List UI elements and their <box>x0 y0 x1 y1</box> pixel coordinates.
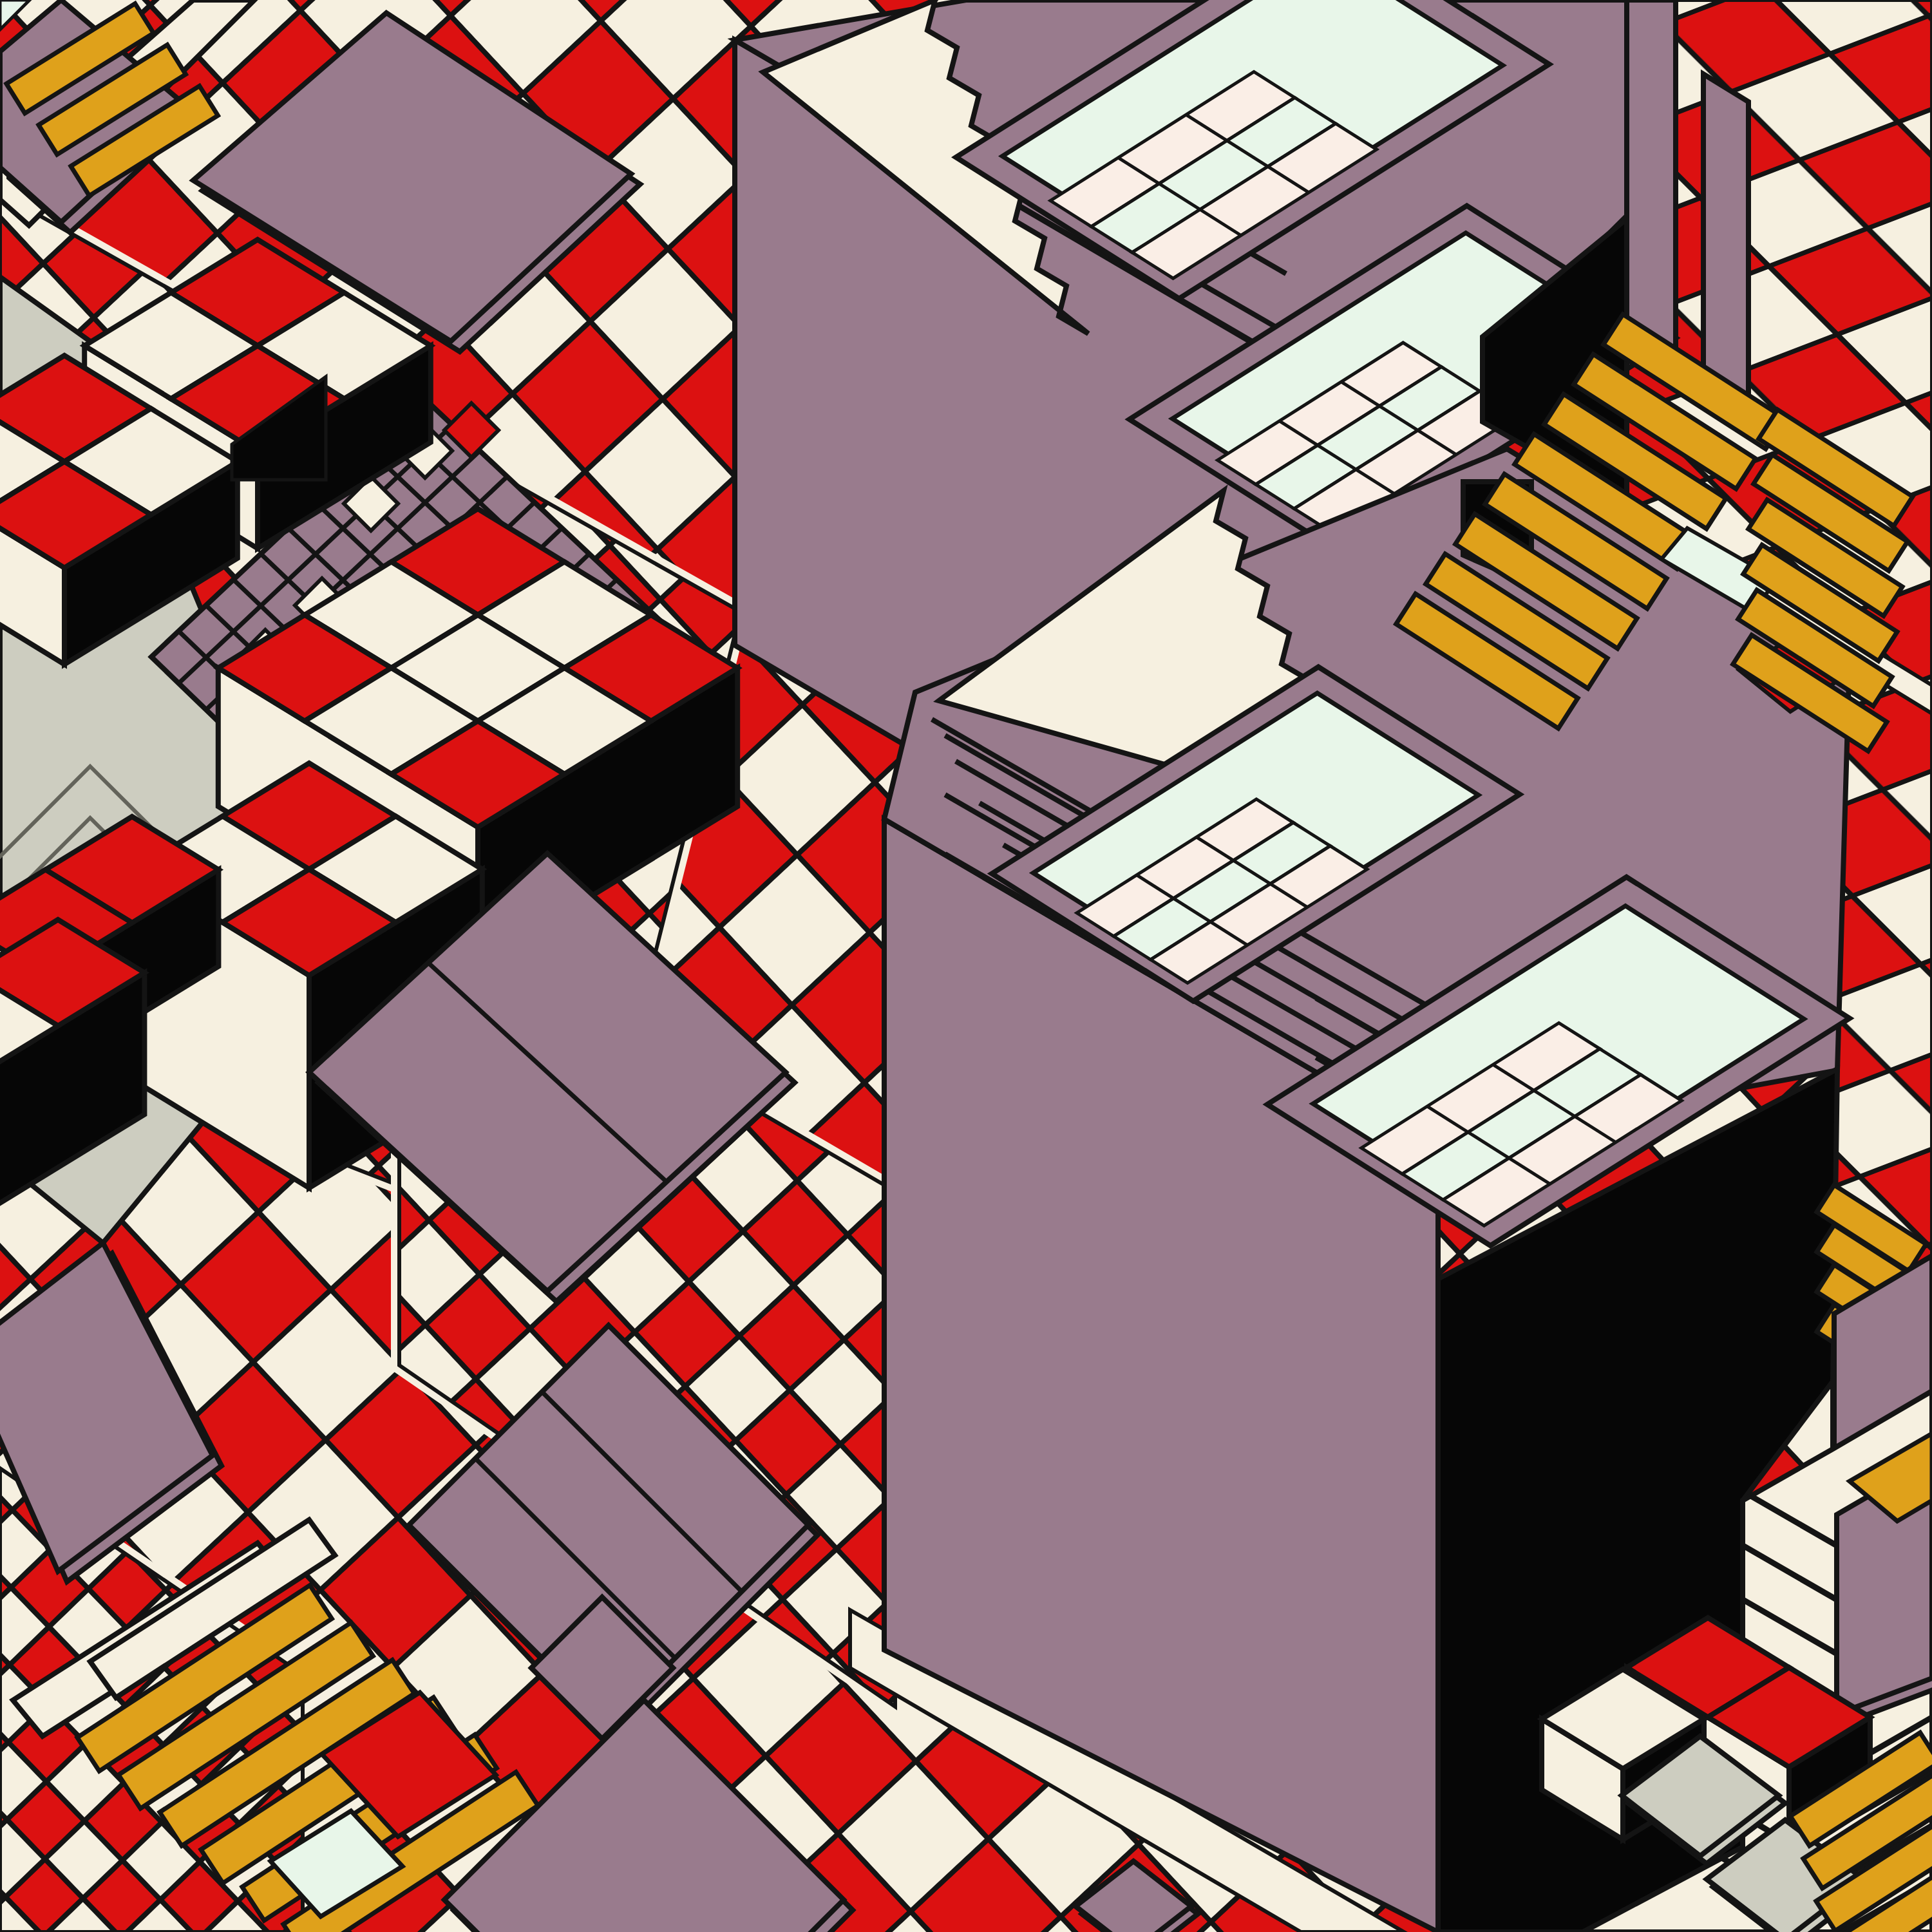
band-strip-2 <box>1703 74 1748 402</box>
band-strip-2 <box>1703 74 1748 402</box>
band-strip-1 <box>1627 0 1676 357</box>
band-strip-1 <box>1627 0 1676 357</box>
generative-artwork <box>0 0 1932 1932</box>
artwork-canvas <box>0 0 1932 1932</box>
scene-root <box>0 0 1932 1932</box>
